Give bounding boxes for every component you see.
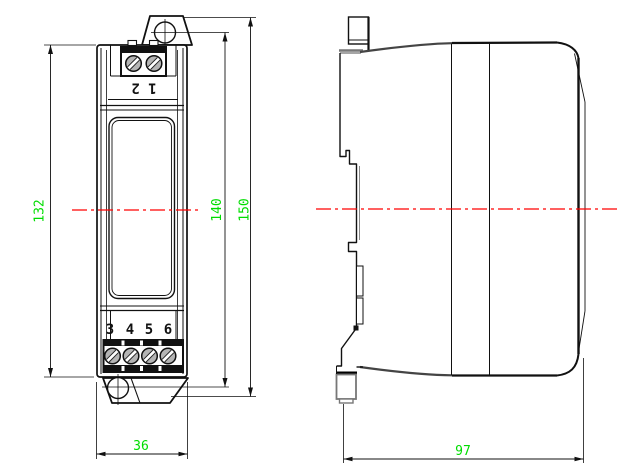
wire-port [128,41,137,46]
terminal-screw-5 [142,348,158,364]
top-terminal-block [121,47,166,76]
drawing-canvas: 1 2 3 4 5 6 [0,0,626,466]
din-clip-foot [337,366,358,403]
terminal-screw-4 [123,348,139,364]
side-top-ear [349,17,369,51]
bottom-terminal-label-3: 3 [106,322,114,338]
top-terminal-label: 1 2 [131,80,156,96]
bottom-terminal-block [104,340,184,372]
bottom-terminal-label-5: 5 [145,322,153,338]
dim-text-150: 150 [238,198,253,221]
dim-text-140: 140 [210,198,225,221]
terminal-screw-1 [126,56,142,72]
terminal-screw-2 [146,56,162,72]
bottom-terminal-label-4: 4 [126,322,134,338]
dim-text-97: 97 [455,444,471,459]
wire-port [150,41,159,46]
label-window [109,118,175,299]
dim-text-132: 132 [33,199,48,222]
terminal-screw-3 [105,348,121,364]
bottom-terminal-label-6: 6 [164,322,172,338]
side-top-surface [452,43,557,44]
side-view [337,17,586,403]
terminal-screw-6 [160,348,176,364]
technical-drawing: 1 2 3 4 5 6 [0,0,626,466]
dim-text-36: 36 [133,439,149,454]
